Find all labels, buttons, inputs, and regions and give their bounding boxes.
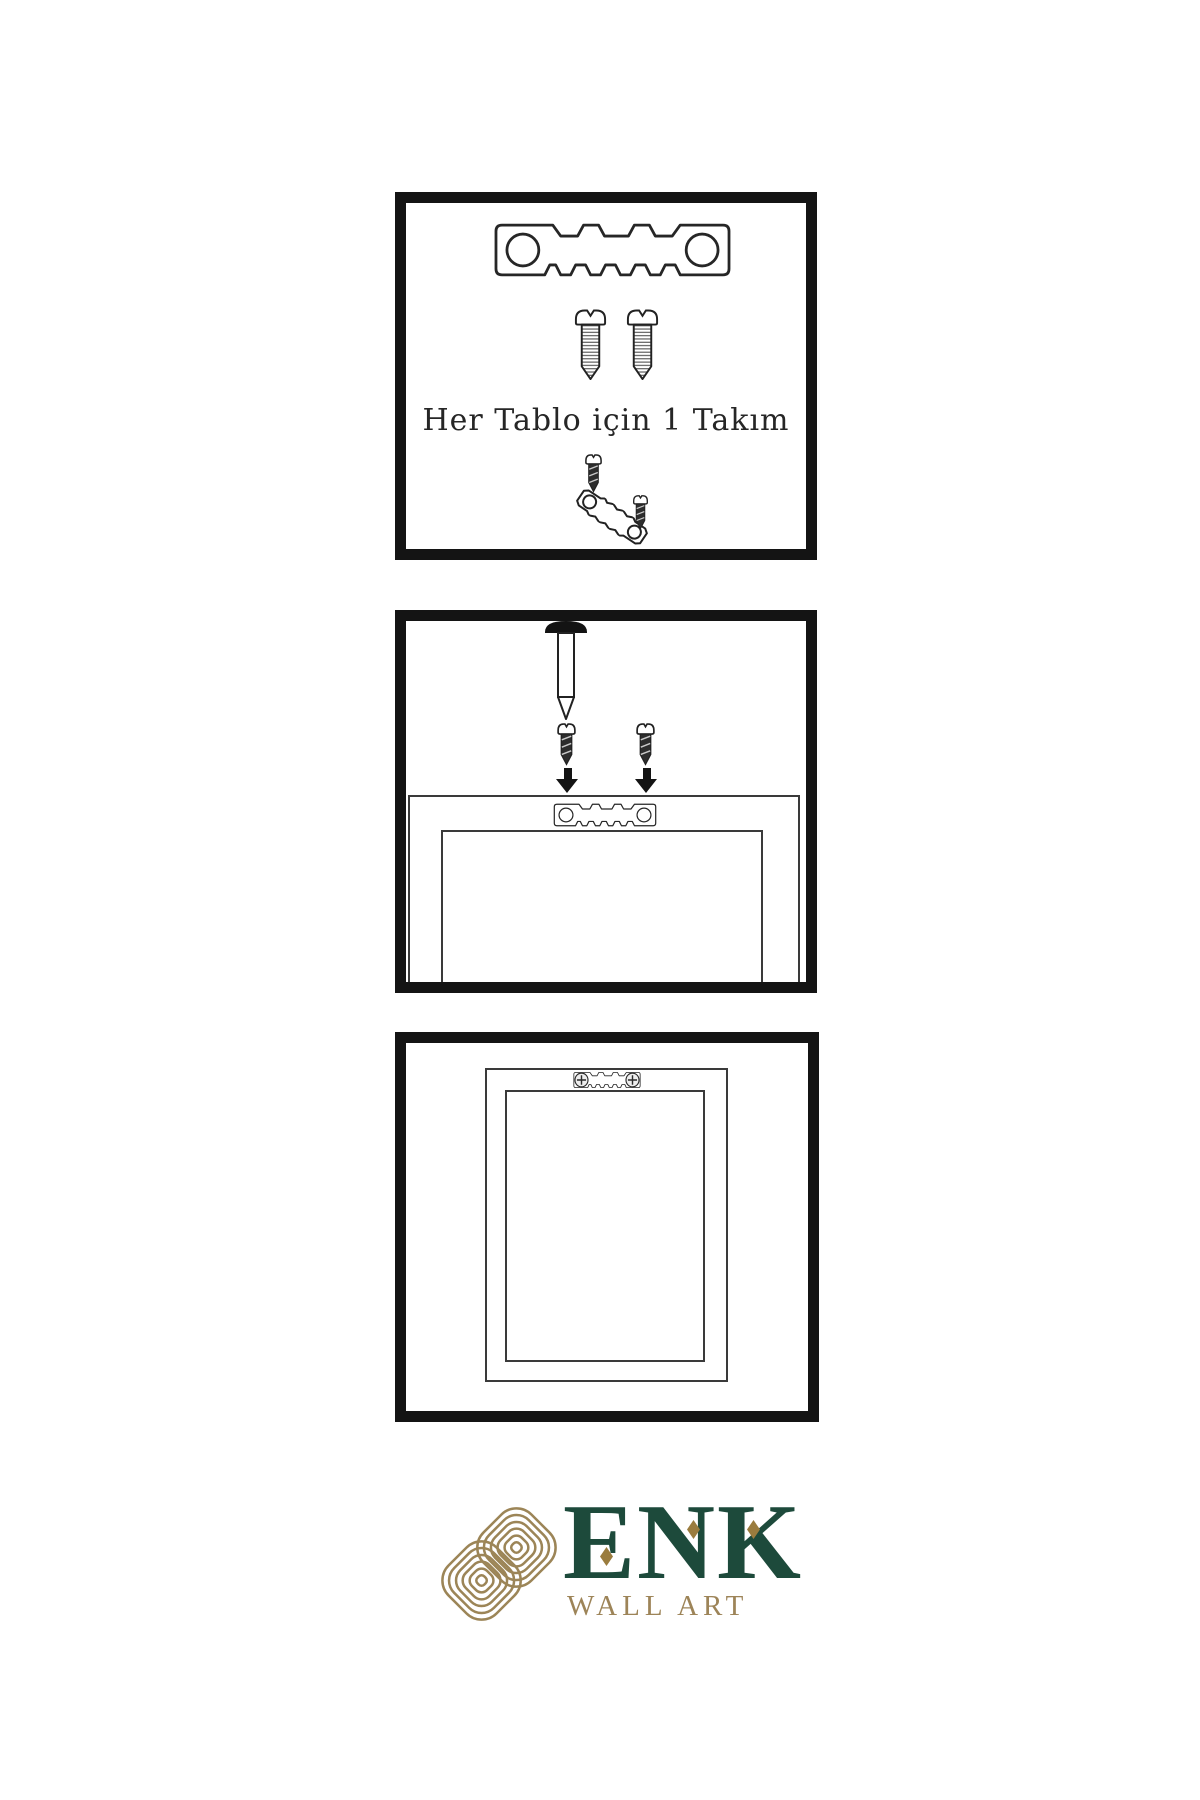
down-arrow-icon	[635, 768, 657, 794]
down-arrow-icon	[556, 768, 578, 794]
nail-icon	[544, 620, 588, 722]
brand-tagline: WALL ART	[567, 1592, 807, 1621]
kit-label: Her Tablo için 1 Takım	[406, 403, 806, 438]
instruction-sheet: Her Tablo için 1 Takım	[0, 0, 1200, 1800]
small-screw-icon	[632, 494, 649, 530]
screw-icon	[625, 307, 660, 382]
dark-screw-icon	[556, 722, 577, 766]
frame-inner-outline	[505, 1090, 705, 1362]
knot-icon	[436, 1497, 562, 1631]
sawtooth-hanger-icon	[493, 222, 732, 278]
hung-frame-panel	[395, 1032, 819, 1422]
dark-screw-icon	[635, 722, 656, 766]
mounting-panel	[395, 610, 817, 993]
brand-name: ENK	[563, 1489, 803, 1597]
mounted-sawtooth-hanger-icon	[573, 1071, 641, 1089]
screw-icon	[573, 307, 608, 382]
frame-back-inner-outline	[441, 830, 763, 993]
sawtooth-hanger-icon	[553, 803, 657, 827]
hardware-kit-panel: Her Tablo için 1 Takım	[395, 192, 817, 560]
